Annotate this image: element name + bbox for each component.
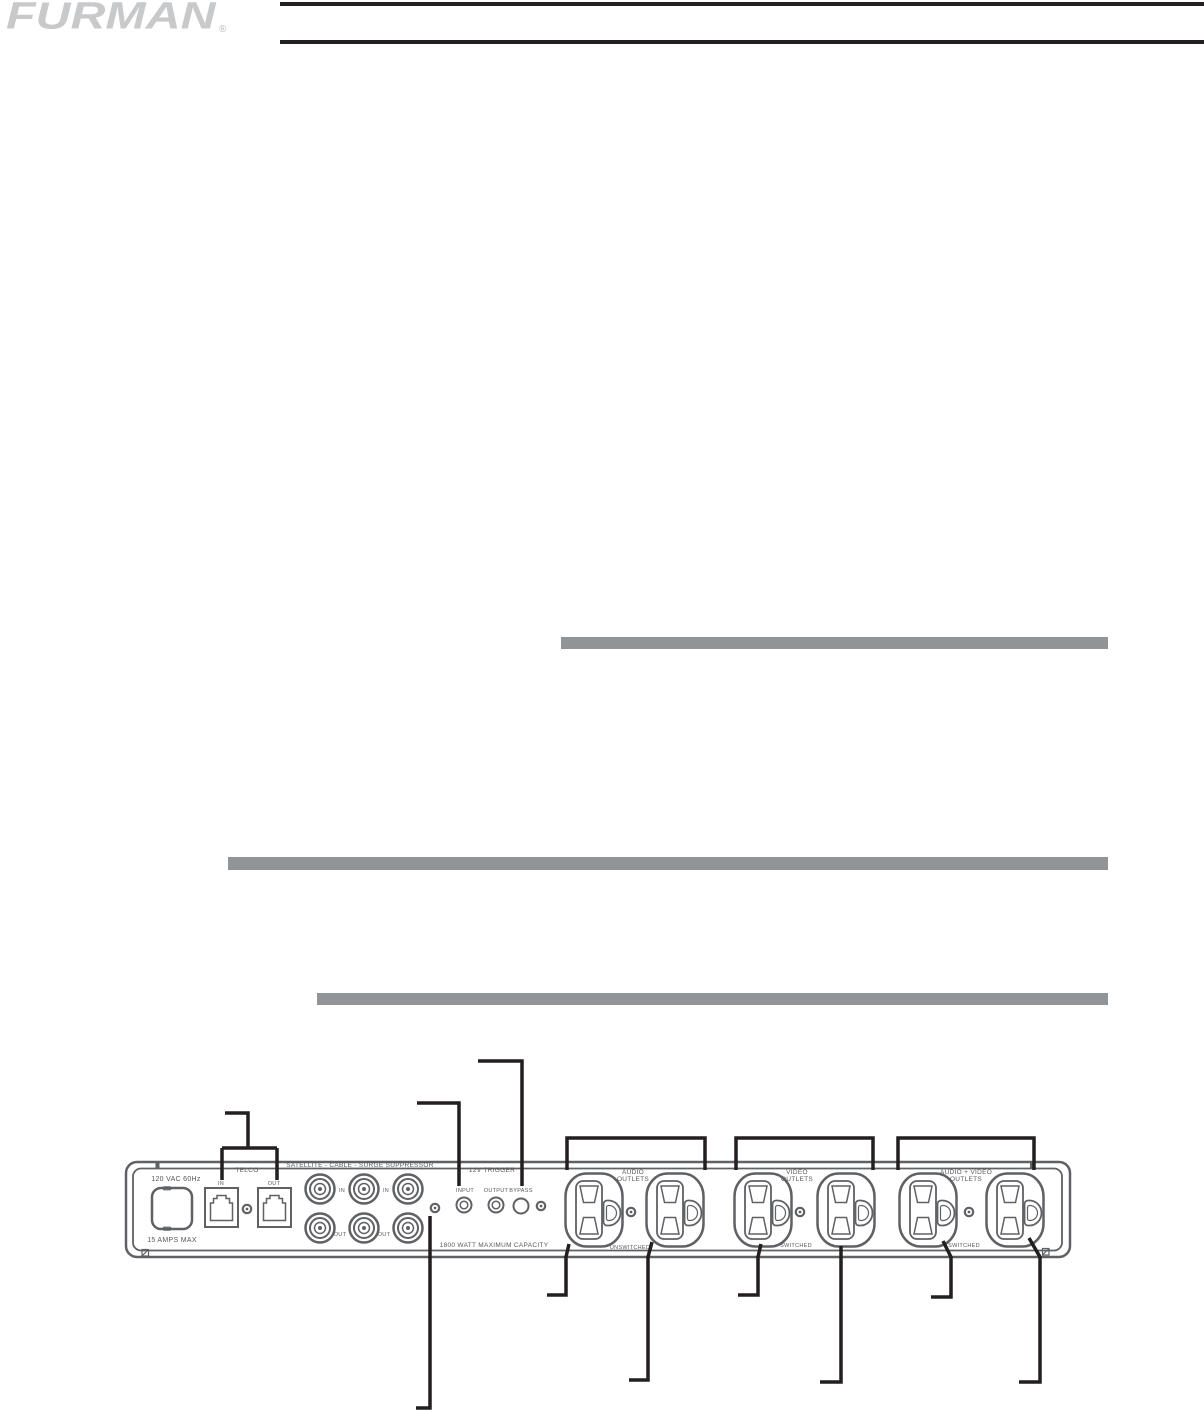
telco-in-jack [205,1188,238,1227]
ac-outlet [735,1174,792,1247]
coax-connector [394,1214,423,1243]
section-bar-3 [317,993,1108,1005]
audio-outlets-title-line2: OUTLETS [617,1176,649,1183]
audio-video-outlets-bracket [898,1138,1034,1170]
coax-connector [350,1175,379,1204]
satellite-callout [416,1216,430,1408]
panel-screw-bottom-right [1043,1249,1050,1256]
trigger-bypass-button [514,1199,529,1214]
trigger-input-label: INPUT [456,1188,474,1194]
screw [431,1204,439,1212]
outlet-callout-3 [738,1244,761,1295]
outlet-callout-2 [629,1242,652,1380]
trigger-title: 12V TRIGGER [469,1167,515,1174]
video-switching-label: SWITCHED [780,1243,812,1249]
satellite-in-label: IN [383,1188,389,1194]
ac-outlet [987,1174,1044,1247]
outlet-callout-1 [547,1244,569,1295]
audio-outlets-title-line1: AUDIO [622,1169,644,1176]
telco-in-label: IN [218,1181,224,1187]
header-rule-top [280,2,1204,6]
audio-switching-label: UNSWITCHED [610,1245,650,1251]
panel-tick-top-left [156,1162,160,1169]
telco-title: TELCO [235,1167,258,1174]
audio-outlets-bracket [567,1138,705,1170]
coax-connector [394,1175,423,1204]
screw [965,1208,973,1216]
registered-trademark: ® [219,24,226,35]
ac-outlet [900,1174,957,1247]
screw [243,1205,251,1213]
trigger-input-callout [417,1103,459,1186]
satellite-in-label: IN [339,1188,345,1194]
video-outlets-title-line1: VIDEO [786,1169,808,1176]
ac-outlet [818,1174,875,1247]
screw [537,1202,545,1210]
satellite-out-label: OUT [378,1232,391,1238]
furman-logo: FURMAN [6,0,216,38]
screw [627,1208,635,1216]
panel-outer-outline [126,1162,1070,1257]
section-bar-2 [228,857,1108,870]
screw [796,1208,804,1216]
trigger-input-jack [457,1198,472,1213]
telco-out-label: OUT [268,1181,281,1187]
outlet-callout-4 [820,1246,841,1382]
header-rule-bottom [280,40,1204,44]
capacity-label: 1800 WATT MAXIMUM CAPACITY [440,1242,549,1249]
trigger-bypass-label: BYPASS [509,1188,532,1194]
audio-video-outlets-title-line1: AUDIO + VIDEO [940,1169,992,1176]
video-outlets-bracket [736,1138,873,1170]
outlet-callout-5 [931,1241,951,1297]
telco-out-jack [258,1188,291,1227]
trigger-output-label: OUTPUT [484,1188,509,1194]
satellite-title: SATELLITE - CABLE - SURGE SUPPRESSOR [286,1162,434,1169]
coax-connector [350,1214,379,1243]
page: { "brand": { "logo_text": "FURMAN", "reg… [0,0,1204,1412]
coax-connector [306,1214,335,1243]
iec-power-inlet [152,1187,192,1230]
max-current-label: 15 AMPS MAX [147,1237,197,1244]
section-bar-1 [561,637,1108,649]
ac-outlet [566,1174,623,1247]
trigger-output-jack [489,1198,504,1213]
voltage-rating-label: 120 VAC 60Hz [151,1176,201,1183]
ac-outlet [647,1174,704,1247]
coax-connector [306,1175,335,1204]
audio-video-outlets-title-line2: OUTLETS [950,1176,982,1183]
satellite-out-label: OUT [334,1232,347,1238]
rear-panel-diagram: 120 VAC 60Hz 15 AMPS MAX TELCO IN OUT SA… [0,1040,1204,1412]
audio-video-switching-label: SWITCHED [948,1243,980,1249]
outlet-callout-6 [1019,1238,1040,1382]
